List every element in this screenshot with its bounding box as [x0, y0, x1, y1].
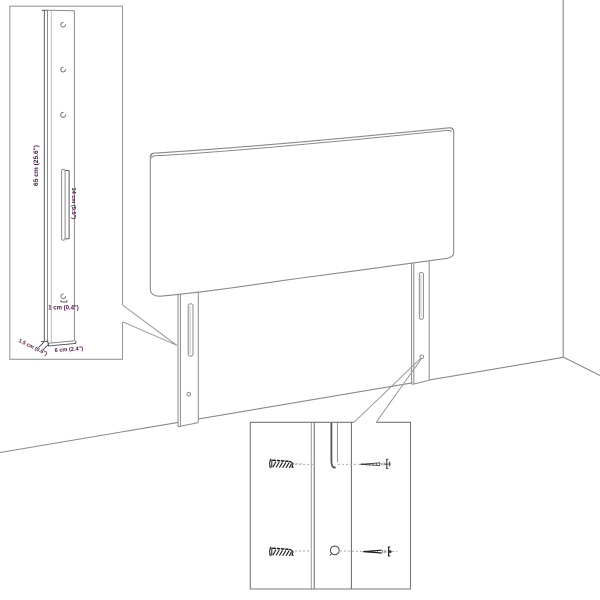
- svg-text:65 cm (25.6"): 65 cm (25.6"): [33, 145, 40, 186]
- svg-text:14 cm (5.5"): 14 cm (5.5"): [70, 188, 76, 220]
- svg-text:1 cm (0.4"): 1 cm (0.4"): [48, 306, 79, 312]
